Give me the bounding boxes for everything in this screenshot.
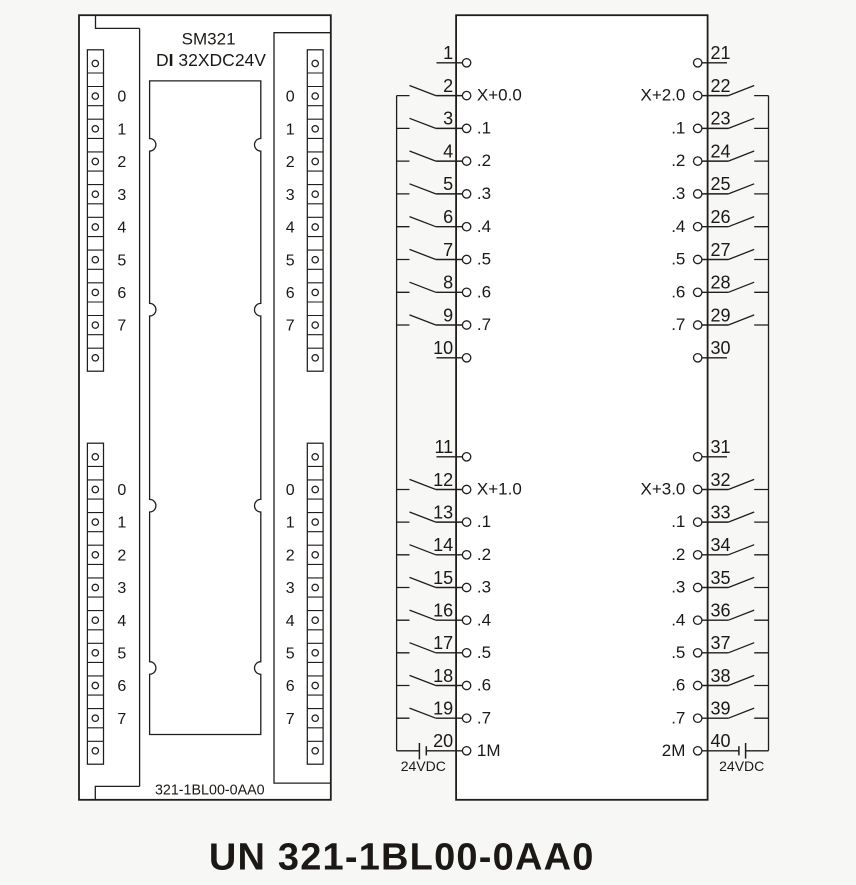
svg-text:32: 32 bbox=[711, 470, 731, 490]
svg-text:0: 0 bbox=[286, 482, 295, 499]
svg-text:6: 6 bbox=[286, 678, 295, 695]
svg-text:.3: .3 bbox=[477, 578, 491, 597]
svg-text:DI 32XDC24V: DI 32XDC24V bbox=[156, 50, 266, 70]
svg-text:29: 29 bbox=[711, 305, 731, 325]
svg-text:28: 28 bbox=[711, 273, 731, 293]
svg-text:SM321: SM321 bbox=[182, 30, 236, 49]
svg-text:1: 1 bbox=[286, 515, 295, 532]
svg-text:7: 7 bbox=[443, 240, 453, 260]
svg-text:15: 15 bbox=[433, 568, 453, 588]
svg-text:7: 7 bbox=[117, 318, 126, 335]
svg-text:40: 40 bbox=[711, 731, 731, 751]
svg-text:UN 321-1BL00-0AA0: UN 321-1BL00-0AA0 bbox=[209, 837, 595, 879]
svg-text:.6: .6 bbox=[477, 676, 491, 695]
svg-text:19: 19 bbox=[433, 699, 453, 719]
svg-text:30: 30 bbox=[711, 338, 731, 358]
svg-text:.7: .7 bbox=[477, 708, 491, 727]
svg-text:25: 25 bbox=[711, 174, 731, 194]
svg-text:.1: .1 bbox=[477, 119, 491, 138]
svg-text:2M: 2M bbox=[662, 741, 686, 760]
svg-text:.5: .5 bbox=[477, 643, 491, 662]
svg-text:35: 35 bbox=[711, 568, 731, 588]
svg-text:21: 21 bbox=[711, 43, 731, 63]
svg-text:321-1BL00-0AA0: 321-1BL00-0AA0 bbox=[155, 782, 265, 798]
svg-text:13: 13 bbox=[433, 502, 453, 522]
svg-text:.2: .2 bbox=[477, 545, 491, 564]
svg-text:.7: .7 bbox=[671, 315, 685, 334]
svg-text:9: 9 bbox=[443, 305, 453, 325]
svg-text:3: 3 bbox=[117, 187, 126, 204]
svg-text:.1: .1 bbox=[671, 512, 685, 531]
svg-text:5: 5 bbox=[117, 645, 126, 662]
svg-text:X+1.0: X+1.0 bbox=[477, 480, 522, 499]
svg-text:1: 1 bbox=[117, 515, 126, 532]
svg-text:.6: .6 bbox=[671, 676, 685, 695]
svg-text:16: 16 bbox=[433, 601, 453, 621]
svg-text:.3: .3 bbox=[671, 578, 685, 597]
svg-text:0: 0 bbox=[117, 482, 126, 499]
svg-text:1: 1 bbox=[443, 43, 453, 63]
svg-text:.2: .2 bbox=[671, 151, 685, 170]
svg-text:6: 6 bbox=[286, 285, 295, 302]
svg-text:6: 6 bbox=[117, 678, 126, 695]
svg-text:26: 26 bbox=[711, 207, 731, 227]
svg-text:.1: .1 bbox=[477, 512, 491, 531]
svg-text:.3: .3 bbox=[477, 184, 491, 203]
svg-text:0: 0 bbox=[286, 89, 295, 106]
svg-text:.5: .5 bbox=[671, 250, 685, 269]
svg-text:.5: .5 bbox=[477, 250, 491, 269]
svg-text:5: 5 bbox=[286, 252, 295, 269]
svg-text:1: 1 bbox=[117, 121, 126, 138]
svg-text:3: 3 bbox=[117, 580, 126, 597]
svg-text:6: 6 bbox=[117, 285, 126, 302]
svg-text:37: 37 bbox=[711, 633, 731, 653]
svg-text:33: 33 bbox=[711, 502, 731, 522]
svg-text:X+2.0: X+2.0 bbox=[640, 86, 685, 105]
svg-text:2: 2 bbox=[117, 547, 126, 564]
svg-text:38: 38 bbox=[711, 666, 731, 686]
svg-text:.7: .7 bbox=[671, 708, 685, 727]
svg-text:20: 20 bbox=[433, 731, 453, 751]
svg-text:8: 8 bbox=[443, 273, 453, 293]
svg-text:.1: .1 bbox=[671, 119, 685, 138]
svg-text:34: 34 bbox=[711, 535, 731, 555]
svg-text:7: 7 bbox=[117, 711, 126, 728]
svg-text:12: 12 bbox=[433, 470, 453, 490]
svg-text:4: 4 bbox=[117, 220, 126, 237]
svg-text:2: 2 bbox=[443, 76, 453, 96]
svg-text:27: 27 bbox=[711, 240, 731, 260]
svg-text:4: 4 bbox=[286, 220, 295, 237]
svg-text:3: 3 bbox=[286, 187, 295, 204]
svg-text:.4: .4 bbox=[671, 217, 685, 236]
svg-text:0: 0 bbox=[117, 89, 126, 106]
svg-text:X+0.0: X+0.0 bbox=[477, 86, 522, 105]
svg-text:10: 10 bbox=[433, 338, 453, 358]
svg-text:5: 5 bbox=[443, 174, 453, 194]
svg-text:24: 24 bbox=[711, 141, 731, 161]
svg-text:7: 7 bbox=[286, 711, 295, 728]
svg-text:.7: .7 bbox=[477, 315, 491, 334]
svg-text:24VDC: 24VDC bbox=[719, 758, 764, 774]
svg-text:11: 11 bbox=[435, 437, 454, 457]
svg-text:6: 6 bbox=[443, 207, 453, 227]
svg-text:31: 31 bbox=[711, 437, 731, 457]
svg-text:X+3.0: X+3.0 bbox=[640, 480, 685, 499]
svg-text:5: 5 bbox=[117, 252, 126, 269]
svg-text:36: 36 bbox=[711, 601, 731, 621]
svg-text:1M: 1M bbox=[477, 741, 501, 760]
svg-text:22: 22 bbox=[711, 76, 731, 96]
svg-text:.2: .2 bbox=[477, 151, 491, 170]
svg-text:2: 2 bbox=[117, 154, 126, 171]
svg-text:2: 2 bbox=[286, 154, 295, 171]
svg-text:5: 5 bbox=[286, 645, 295, 662]
svg-text:.4: .4 bbox=[477, 610, 491, 629]
svg-text:18: 18 bbox=[433, 666, 453, 686]
svg-text:2: 2 bbox=[286, 547, 295, 564]
svg-text:3: 3 bbox=[286, 580, 295, 597]
svg-text:7: 7 bbox=[286, 318, 295, 335]
svg-text:17: 17 bbox=[433, 633, 453, 653]
svg-text:.4: .4 bbox=[477, 217, 491, 236]
svg-text:39: 39 bbox=[711, 699, 731, 719]
svg-text:.6: .6 bbox=[477, 282, 491, 301]
svg-text:4: 4 bbox=[443, 141, 453, 161]
svg-text:.4: .4 bbox=[671, 610, 685, 629]
svg-text:.6: .6 bbox=[671, 282, 685, 301]
svg-text:4: 4 bbox=[117, 613, 126, 630]
svg-text:24VDC: 24VDC bbox=[401, 758, 446, 774]
svg-text:.5: .5 bbox=[671, 643, 685, 662]
svg-text:4: 4 bbox=[286, 613, 295, 630]
svg-text:23: 23 bbox=[711, 109, 731, 129]
svg-text:3: 3 bbox=[443, 109, 453, 129]
svg-text:1: 1 bbox=[286, 121, 295, 138]
svg-text:14: 14 bbox=[433, 535, 453, 555]
svg-text:.2: .2 bbox=[671, 545, 685, 564]
svg-text:.3: .3 bbox=[671, 184, 685, 203]
